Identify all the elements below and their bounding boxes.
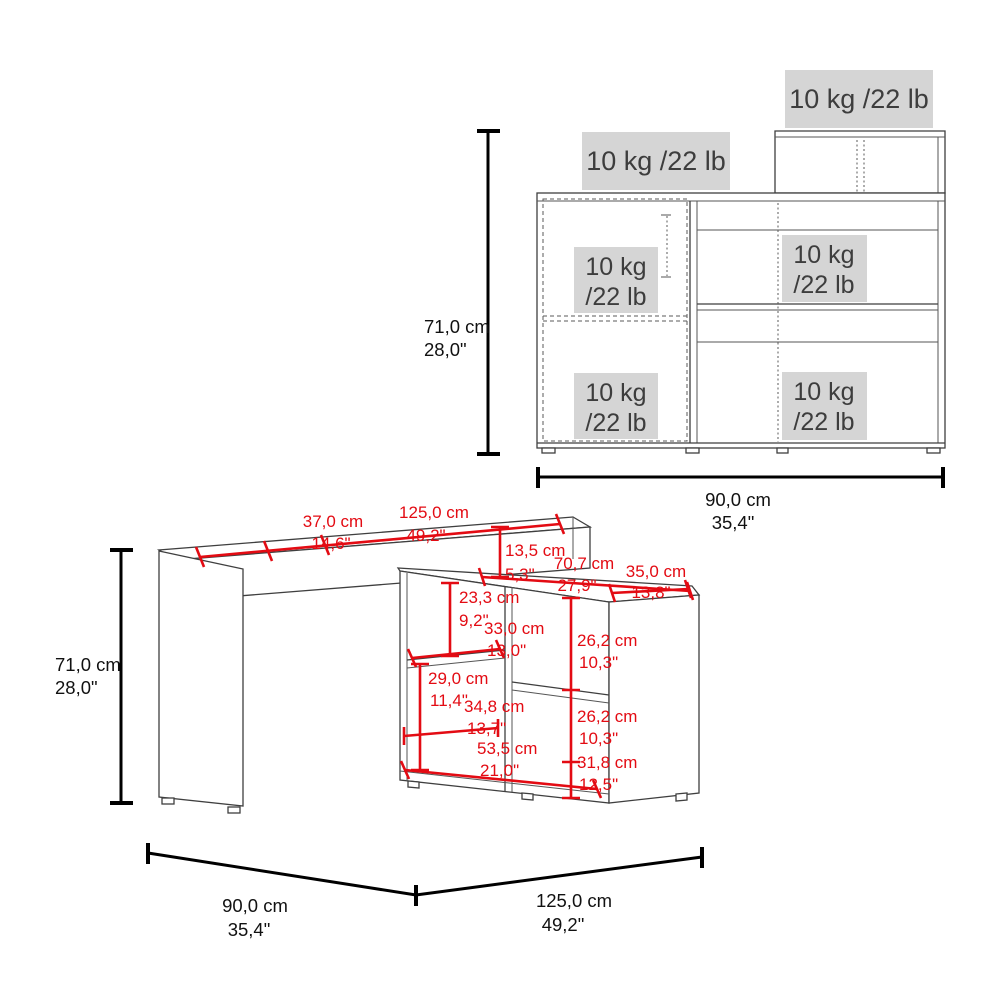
desk-side-panel (159, 551, 243, 813)
desk-height-cm: 71,0 cm (55, 654, 121, 675)
weight-text: 10 kg /22 lb (586, 146, 726, 176)
dim-right-bottom-cm: 31,8 cm (577, 753, 637, 772)
compartment-weight-label-right-upper: 10 kg /22 lb (782, 235, 867, 302)
cabinet-width-cm: 90,0 cm (705, 489, 771, 510)
desk-height-in: 28,0" (55, 677, 98, 698)
diagram-canvas: 10 kg /22 lb 10 kg /22 lb (0, 0, 1000, 1000)
desk-footprint-dimension: 90,0 cm 35,4" 125,0 cm 49,2" (148, 843, 702, 940)
dim-right-lower-cm: 26,2 cm (577, 707, 637, 726)
weight-text: 10 kg /22 lb (789, 84, 929, 114)
dim-right-bottom-in: 12,5" (579, 775, 618, 794)
dim-return-length-in: 27,9" (557, 576, 596, 595)
dim-desktop-overhang-cm: 37,0 cm (303, 512, 363, 531)
cabinet-hutch (775, 131, 945, 193)
weight-text: 10 kg (585, 253, 646, 281)
dim-desktop-overhang-in: 14,6" (311, 534, 350, 553)
weight-text: /22 lb (585, 409, 646, 437)
cabinet-height-cm: 71,0 cm (424, 316, 490, 337)
weight-text: /22 lb (793, 408, 854, 436)
dim-upper-cubby-cm: 23,3 cm (459, 588, 519, 607)
footprint-right-cm: 125,0 cm (536, 890, 612, 911)
cabinet-width-in: 35,4" (712, 512, 755, 533)
dim-lower-left-in: 11,4" (430, 691, 468, 710)
dim-lower-left-cm: 29,0 cm (428, 669, 488, 688)
desk-isometric-view: 37,0 cm 14,6" 125,0 cm 49,2" 13,5 cm 5,3… (55, 503, 702, 940)
weight-text: 10 kg (793, 241, 854, 269)
dim-shelf-width-in: 13,0" (487, 641, 526, 660)
cabinet-height-in: 28,0" (424, 339, 467, 360)
dim-base-width-in: 21,0" (480, 761, 519, 780)
dim-lower-width-in: 13,7" (467, 719, 506, 738)
dim-right-lower-in: 10,3" (579, 729, 618, 748)
cabinet-width-dimension: 90,0 cm 35,4" (538, 467, 943, 533)
desk-foot (162, 798, 174, 804)
cabinet-foot (686, 448, 699, 453)
cabinet-foot (927, 448, 940, 453)
dim-base-width-cm: 53,5 cm (477, 739, 537, 758)
weight-text: /22 lb (585, 283, 646, 311)
dim-return-depth-cm: 35,0 cm (626, 562, 686, 581)
compartment-weight-label-door-lower: 10 kg /22 lb (574, 373, 658, 439)
cabinet-foot (777, 448, 788, 453)
weight-text: /22 lb (793, 271, 854, 299)
dim-desktop-drop-in: 5,3" (505, 565, 535, 584)
dim-shelf-width-cm: 33,0 cm (484, 619, 544, 638)
footprint-right-in: 49,2" (542, 914, 585, 935)
weight-text: 10 kg (585, 379, 646, 407)
weight-text: 10 kg (793, 378, 854, 406)
cabinet-height-dimension: 71,0 cm 28,0" (424, 131, 500, 454)
cabinet-front-view: 10 kg /22 lb 10 kg /22 lb (424, 70, 945, 533)
return-foot (408, 781, 419, 788)
compartment-weight-label-door-upper: 10 kg /22 lb (574, 247, 658, 313)
dim-return-depth-in: 13,8" (631, 583, 670, 602)
desk-height-dimension: 71,0 cm 28,0" (55, 550, 133, 803)
cabinet-foot (542, 448, 555, 453)
footprint-left-cm: 90,0 cm (222, 895, 288, 916)
dim-right-upper-cm: 26,2 cm (577, 631, 637, 650)
return-foot (676, 793, 687, 801)
cabinet-top-left-weight-label: 10 kg /22 lb (582, 132, 730, 190)
footprint-left-in: 35,4" (228, 919, 271, 940)
dim-lower-width-cm: 34,8 cm (464, 697, 524, 716)
compartment-weight-label-right-lower: 10 kg /22 lb (782, 372, 867, 440)
dim-desktop-length-in: 49,2" (406, 526, 445, 545)
dim-right-upper-in: 10,3" (579, 653, 618, 672)
return-foot (522, 793, 533, 800)
dim-return-length-cm: 70,7 cm (554, 554, 614, 573)
dim-desktop-length-cm: 125,0 cm (399, 503, 469, 522)
desk-foot (228, 807, 240, 813)
cabinet-top-right-weight-label: 10 kg /22 lb (785, 70, 933, 128)
furniture-dimension-diagram: 10 kg /22 lb 10 kg /22 lb (0, 0, 1000, 1000)
